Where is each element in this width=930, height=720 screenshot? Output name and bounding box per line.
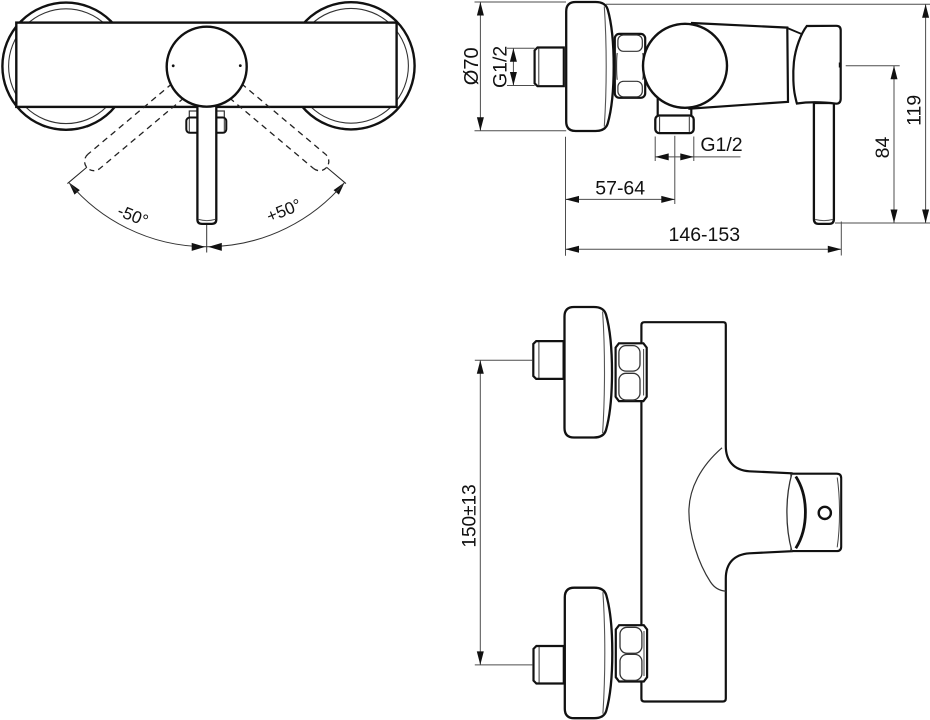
svg-text:146-153: 146-153 — [669, 224, 741, 246]
svg-text:57-64: 57-64 — [595, 177, 645, 199]
svg-text:-50°: -50° — [115, 201, 151, 230]
svg-text:119: 119 — [904, 95, 926, 126]
svg-text:Ø70: Ø70 — [461, 47, 483, 85]
svg-text:G1/2: G1/2 — [490, 46, 512, 88]
svg-text:84: 84 — [872, 137, 894, 159]
svg-text:150±13: 150±13 — [460, 484, 481, 547]
svg-text:G1/2: G1/2 — [700, 134, 742, 156]
